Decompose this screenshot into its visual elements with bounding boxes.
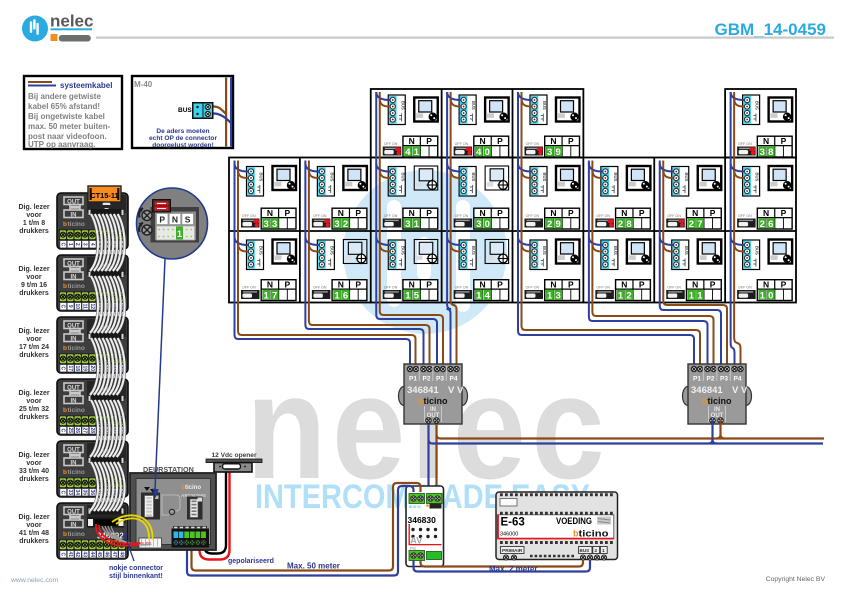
svg-text:ticino: ticino [68,283,85,290]
svg-text:8: 8 [768,147,773,158]
svg-text:OFF ON: OFF ON [596,286,610,290]
svg-text:Dig. lezer: Dig. lezer [18,204,49,211]
svg-text:N: N [267,280,273,290]
svg-text:ticino: ticino [579,529,610,539]
svg-text:46: 46 [104,551,110,557]
svg-text:19: 19 [82,365,88,371]
svg-text:3: 3 [272,219,277,230]
svg-text:BUS: BUS [542,173,547,182]
svg-text:P: P [781,208,787,218]
svg-text:OFF ON: OFF ON [667,286,681,290]
svg-text:12 Vdc opener: 12 Vdc opener [211,452,257,459]
svg-text:1: 1 [177,229,183,240]
svg-text:b: b [63,531,67,538]
svg-text:P: P [639,280,645,290]
svg-text:17: 17 [67,365,73,371]
svg-text:P: P [497,280,503,290]
svg-text:25 t/m 32: 25 t/m 32 [19,406,49,413]
svg-text:20: 20 [89,365,95,371]
svg-text:2: 2 [595,548,598,554]
svg-text:10: 10 [74,303,80,309]
svg-text:BUS IN: BUS IN [409,505,421,509]
svg-text:4: 4 [89,243,95,246]
svg-text:BUS: BUS [580,548,590,553]
svg-text:IN: IN [71,336,77,342]
svg-text:3: 3 [476,219,481,230]
svg-text:P: P [710,280,716,290]
svg-text:P: P [426,208,432,218]
svg-text:P: P [426,136,432,146]
svg-text:OUT: OUT [67,261,80,267]
svg-text:ticino: ticino [68,531,85,538]
svg-text:346841: 346841 [407,385,439,396]
svg-text:1: 1 [697,290,703,301]
svg-text:ticino: ticino [424,396,449,406]
svg-text:3: 3 [264,219,269,230]
svg-text:N: N [763,280,769,290]
svg-text:N: N [479,208,485,218]
svg-text:drukkers: drukkers [19,538,49,545]
svg-text:P: P [284,208,290,218]
svg-text:ticino: ticino [185,485,201,491]
svg-text:6: 6 [343,290,348,301]
svg-text:BUS: BUS [613,173,618,182]
svg-text:Bij andere getwiste: Bij andere getwiste [28,92,101,101]
svg-text:C: C [59,552,65,556]
svg-text:Dig. lezer: Dig. lezer [18,390,49,397]
svg-text:IN: IN [71,522,77,528]
svg-text:echt OP de connector: echt OP de connector [149,135,217,142]
svg-text:C: C [59,242,65,246]
svg-text:max. 50 meter buiten-: max. 50 meter buiten- [28,122,111,131]
svg-text:BUS: BUS [755,173,760,182]
svg-text:BUS: BUS [329,246,334,255]
svg-text:N: N [550,136,556,146]
svg-text:BUS: BUS [755,101,760,110]
svg-text:OFF ON: OFF ON [242,214,256,218]
svg-text:BUS: BUS [400,173,405,182]
svg-text:1: 1 [547,290,553,301]
svg-text:2: 2 [74,243,80,246]
svg-text:P: P [497,136,503,146]
svg-text:34: 34 [74,489,80,495]
svg-text:www.nelec.com: www.nelec.com [10,577,59,584]
svg-text:N: N [550,208,556,218]
svg-text:S: S [185,214,191,224]
svg-text:P: P [639,208,645,218]
svg-text:2: 2 [689,219,694,230]
svg-text:Dig. lezer: Dig. lezer [18,514,49,521]
svg-text:44: 44 [89,551,95,557]
svg-text:OFF ON: OFF ON [738,142,752,146]
svg-text:P2: P2 [423,376,431,383]
svg-text:N: N [763,208,769,218]
svg-text:346000: 346000 [500,532,518,538]
svg-text:drukkers: drukkers [19,228,49,235]
svg-text:OFF ON: OFF ON [242,286,256,290]
svg-text:BUS: BUS [684,246,689,255]
svg-text:9: 9 [556,147,561,158]
svg-text:36: 36 [89,489,95,495]
svg-text:PRIMAIR: PRIMAIR [502,548,523,554]
svg-text:48: 48 [118,551,124,557]
svg-text:OUT: OUT [67,199,80,205]
svg-text:OFF ON: OFF ON [455,286,469,290]
svg-text:P4: P4 [450,376,458,383]
svg-text:Dig. lezer: Dig. lezer [18,452,49,459]
svg-text:b: b [63,283,67,290]
svg-text:BUS: BUS [684,173,689,182]
svg-text:7: 7 [697,219,702,230]
svg-text:C: C [59,428,65,432]
svg-text:OUT: OUT [67,323,80,329]
svg-text:M-40: M-40 [134,80,153,89]
svg-text:N: N [172,214,178,224]
svg-text:Dig. lezer: Dig. lezer [18,266,49,273]
svg-text:BUS: BUS [329,173,334,182]
svg-text:CT15-11: CT15-11 [90,191,118,200]
svg-text:N: N [338,208,344,218]
svg-text:OFF ON: OFF ON [596,214,610,218]
svg-text:P: P [710,208,716,218]
svg-text:P: P [355,280,361,290]
svg-text:3: 3 [760,147,765,158]
svg-text:E-63: E-63 [501,517,525,529]
svg-text:N: N [621,280,627,290]
svg-text:27: 27 [82,427,88,433]
svg-text:28: 28 [89,427,95,433]
svg-text:systeemkabel: systeemkabel [60,81,112,90]
svg-text:IN: IN [71,398,77,404]
svg-text:P: P [159,214,165,224]
svg-text:P: P [781,136,787,146]
svg-text:P: P [284,280,290,290]
svg-text:Dig. lezer: Dig. lezer [18,328,49,335]
svg-text:stijl binnenkant!: stijl binnenkant! [109,573,163,580]
svg-text:nokje connector: nokje connector [109,565,163,572]
svg-text:ticino: ticino [68,345,85,352]
svg-text:IN: IN [71,460,77,466]
svg-text:P: P [355,208,361,218]
svg-text:UTP op aanvraag.: UTP op aanvraag. [28,140,95,149]
svg-text:V V: V V [732,385,748,396]
svg-text:OFF ON: OFF ON [738,286,752,290]
svg-text:33: 33 [67,489,73,495]
svg-text:OFF ON: OFF ON [526,214,540,218]
svg-text:11: 11 [82,304,88,310]
svg-text:P: P [781,280,787,290]
svg-text:doorgelust worden!: doorgelust worden! [152,142,214,149]
svg-text:P1: P1 [409,376,417,383]
svg-text:C: C [59,366,65,370]
svg-text:drukkers: drukkers [19,352,49,359]
svg-text:N: N [550,280,556,290]
svg-text:BUS: BUS [259,173,264,182]
svg-text:1: 1 [414,219,420,230]
svg-text:3: 3 [334,219,339,230]
svg-text:OFF ON: OFF ON [526,286,540,290]
svg-text:N: N [621,208,627,218]
svg-text:N: N [692,208,698,218]
svg-text:nelec: nelec [50,12,93,31]
svg-text:N: N [338,280,344,290]
svg-text:N: N [409,136,415,146]
svg-text:P3: P3 [436,376,444,383]
svg-text:N: N [763,136,769,146]
svg-text:17 t/m 24: 17 t/m 24 [19,344,49,351]
svg-text:43: 43 [82,551,88,557]
svg-text:C: C [59,490,65,494]
svg-text:BUS: BUS [471,246,476,255]
svg-text:2: 2 [760,219,765,230]
svg-text:OUT: OUT [67,385,80,391]
svg-text:P: P [568,280,574,290]
svg-text:1: 1 [689,290,695,301]
svg-text:ticino: ticino [68,221,85,228]
svg-text:1: 1 [405,290,411,301]
svg-text:N: N [479,280,485,290]
svg-text:IN: IN [71,212,77,218]
svg-text:voor: voor [26,336,41,343]
svg-text:OFF ON: OFF ON [384,214,398,218]
svg-text:P2: P2 [707,376,715,383]
svg-text:0: 0 [768,290,773,301]
svg-text:b: b [63,221,67,228]
svg-text:N: N [409,280,415,290]
svg-text:N: N [409,208,415,218]
svg-text:b: b [63,469,67,476]
svg-text:drukkers: drukkers [19,476,49,483]
svg-text:voor: voor [26,274,41,281]
svg-text:Bij ongetwiste kabel: Bij ongetwiste kabel [28,112,105,121]
svg-text:2: 2 [626,290,631,301]
svg-text:P: P [426,280,432,290]
svg-text:BUS: BUS [755,246,760,255]
svg-text:OFF ON: OFF ON [455,142,469,146]
svg-text:voor: voor [26,212,41,219]
svg-text:BUS: BUS [613,246,618,255]
svg-text:8: 8 [626,219,631,230]
svg-text:ticino: ticino [68,407,85,414]
svg-text:kabel 65% afstand!: kabel 65% afstand! [28,102,100,111]
svg-text:346830: 346830 [408,515,437,525]
svg-text:GBM_14-0459: GBM_14-0459 [714,20,826,39]
svg-text:5: 5 [414,290,420,301]
svg-text:BUS: BUS [400,101,405,110]
svg-text:OFF ON: OFF ON [738,214,752,218]
svg-text:25: 25 [67,427,73,433]
svg-text:N: N [479,136,485,146]
svg-text:1: 1 [476,290,482,301]
svg-text:P: P [568,208,574,218]
svg-text:41 t/m 48: 41 t/m 48 [19,530,49,537]
svg-text:P: P [568,136,574,146]
svg-text:voor: voor [26,398,41,405]
svg-text:OUT: OUT [67,447,80,453]
svg-text:BUS: BUS [400,246,405,255]
svg-text:drukkers: drukkers [19,290,49,297]
svg-text:9: 9 [67,305,73,308]
svg-text:1 t/m 8: 1 t/m 8 [23,220,45,227]
svg-text:33 t/m 40: 33 t/m 40 [19,468,49,475]
svg-text:45: 45 [96,551,102,557]
svg-text:0: 0 [485,219,490,230]
svg-text:P1: P1 [693,376,701,383]
svg-text:9 t/m 16: 9 t/m 16 [21,282,47,289]
svg-text:2: 2 [547,219,552,230]
svg-text:OFF ON: OFF ON [526,142,540,146]
svg-text:1: 1 [334,290,340,301]
svg-text:drukkers: drukkers [19,414,49,421]
svg-text:47: 47 [111,551,117,557]
svg-text:346841: 346841 [691,385,723,396]
svg-text:3: 3 [82,243,88,246]
svg-text:C: C [59,304,65,308]
svg-text:voor: voor [26,522,41,529]
svg-text:6: 6 [768,219,773,230]
svg-text:1: 1 [618,290,624,301]
svg-text:N: N [267,208,273,218]
svg-text:P: P [497,208,503,218]
svg-text:BUS: BUS [471,173,476,182]
svg-text:P4: P4 [734,376,742,383]
svg-text:N: N [692,280,698,290]
svg-text:OFF ON: OFF ON [384,286,398,290]
svg-text:ticino: ticino [68,469,85,476]
svg-text:9: 9 [556,219,561,230]
svg-text:7: 7 [272,290,277,301]
svg-text:P3: P3 [720,376,728,383]
svg-text:OUT: OUT [67,509,80,515]
svg-text:3: 3 [405,219,410,230]
svg-text:OFF ON: OFF ON [384,142,398,146]
svg-text:26: 26 [74,427,80,433]
svg-text:4: 4 [485,290,491,301]
svg-text:BUS: BUS [542,101,547,110]
svg-text:35: 35 [82,489,88,495]
svg-text:BUS: BUS [178,107,192,114]
svg-text:42: 42 [74,551,80,557]
svg-text:Max. 50 meter: Max. 50 meter [287,562,340,571]
svg-text:VOEDING: VOEDING [556,516,592,527]
svg-text:Copyright Nelec BV: Copyright Nelec BV [766,576,826,583]
svg-text:ticino: ticino [708,396,733,406]
svg-text:OFF ON: OFF ON [667,214,681,218]
svg-text:4: 4 [476,147,482,158]
svg-text:OFF ON: OFF ON [313,286,327,290]
svg-text:2: 2 [343,219,348,230]
svg-text:De aders moeten: De aders moeten [156,128,209,135]
svg-text:Max. 2 meter: Max. 2 meter [489,565,537,574]
svg-text:BUS: BUS [471,101,476,110]
svg-text:voor: voor [26,460,41,467]
svg-text:18: 18 [74,365,80,371]
svg-text:OFF ON: OFF ON [313,214,327,218]
svg-text:3: 3 [547,147,552,158]
svg-text:41: 41 [67,551,73,557]
svg-text:12: 12 [89,303,95,309]
svg-text:BUS: BUS [542,246,547,255]
svg-text:1: 1 [67,243,73,246]
svg-text:1: 1 [602,548,605,554]
svg-text:gepolariseerd: gepolariseerd [228,558,274,565]
svg-text:3: 3 [556,290,561,301]
svg-text:b: b [63,345,67,352]
svg-text:1: 1 [264,290,270,301]
svg-text:b: b [63,407,67,414]
svg-text:IN: IN [71,274,77,280]
svg-text:V V: V V [448,385,464,396]
svg-text:2: 2 [618,219,623,230]
svg-text:1: 1 [414,147,420,158]
svg-text:OFF ON: OFF ON [455,214,469,218]
svg-text:BUS: BUS [259,246,264,255]
svg-text:4: 4 [405,147,411,158]
svg-text:1: 1 [760,290,766,301]
svg-text:0: 0 [485,147,490,158]
